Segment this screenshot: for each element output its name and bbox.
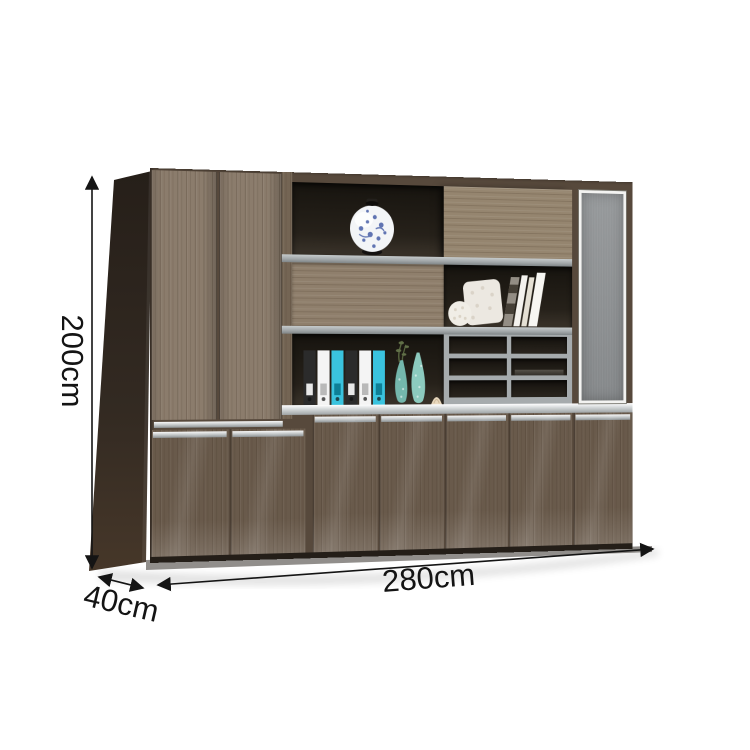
dimension-annotations: 200cm 40cm 280cm (0, 0, 750, 750)
depth-dimension-label: 40cm (80, 578, 162, 629)
height-dimension-label: 200cm (55, 314, 90, 407)
product-image: 200cm 40cm 280cm (0, 0, 750, 750)
width-dimension-label: 280cm (381, 557, 477, 599)
